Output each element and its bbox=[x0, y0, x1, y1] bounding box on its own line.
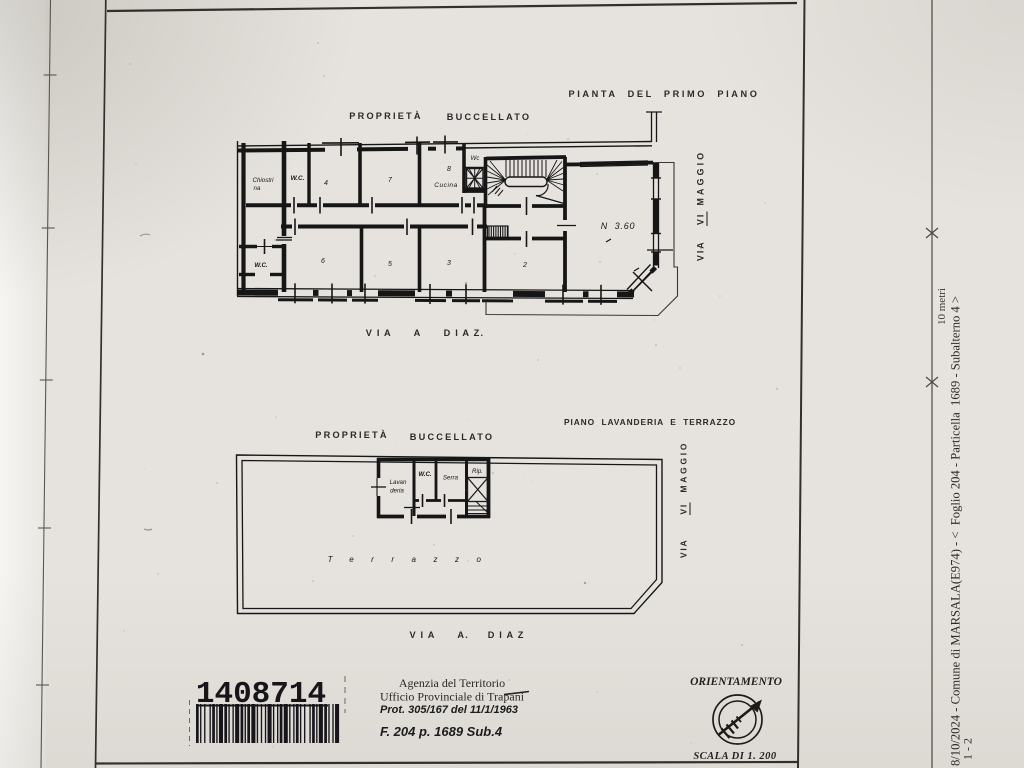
svg-text:W.C.: W.C. bbox=[418, 471, 432, 478]
svg-text:N 3.60: N 3.60 bbox=[601, 221, 636, 231]
svg-text:ORIENTAMENTO: ORIENTAMENTO bbox=[690, 676, 782, 688]
svg-text:3: 3 bbox=[447, 260, 451, 267]
svg-text:PROPRIETÀ: PROPRIETÀ bbox=[315, 429, 388, 440]
svg-text:Ufficio Provinciale di Trapani: Ufficio Provinciale di Trapani bbox=[380, 690, 525, 704]
svg-text:W.C.: W.C. bbox=[291, 175, 305, 182]
svg-text:2: 2 bbox=[522, 262, 527, 269]
svg-text:na: na bbox=[254, 185, 261, 192]
svg-text:W.C.: W.C. bbox=[254, 262, 268, 269]
svg-text:VIA: VIA bbox=[696, 240, 706, 261]
svg-text:Serra: Serra bbox=[443, 475, 459, 482]
svg-text:BUCCELLATO: BUCCELLATO bbox=[410, 432, 494, 442]
svg-text:Lavan: Lavan bbox=[390, 479, 407, 486]
svg-text:MAGGIO: MAGGIO bbox=[696, 150, 706, 206]
svg-text:1 - 2: 1 - 2 bbox=[961, 738, 975, 760]
svg-text:VI: VI bbox=[679, 503, 689, 515]
svg-text:SCALA DI 1. 200: SCALA DI 1. 200 bbox=[693, 751, 777, 762]
svg-text:4: 4 bbox=[324, 180, 328, 187]
svg-text:PIANTA DEL PRIMO PIANO: PIANTA DEL PRIMO PIANO bbox=[569, 89, 760, 99]
svg-text:PIANO LAVANDERIA E TERRAZZO: PIANO LAVANDERIA E TERRAZZO bbox=[564, 417, 736, 427]
svg-text:Cucina: Cucina bbox=[434, 182, 458, 189]
svg-text:BUCCELLATO: BUCCELLATO bbox=[447, 112, 531, 122]
svg-text:V I A A D I A Z.: V I A A D I A Z. bbox=[366, 328, 484, 338]
svg-text:8/10/2024 - Comune di MARSALA(: 8/10/2024 - Comune di MARSALA(E974) - < … bbox=[949, 296, 963, 766]
svg-text:Agenzia del Territorio: Agenzia del Territorio bbox=[399, 676, 505, 690]
svg-text:MAGGIO: MAGGIO bbox=[679, 441, 689, 493]
svg-text:VIA: VIA bbox=[679, 539, 689, 558]
svg-text:VI: VI bbox=[696, 213, 706, 225]
svg-text:V I A A. D I A Z: V I A A. D I A Z bbox=[409, 630, 524, 640]
svg-text:6: 6 bbox=[321, 258, 325, 265]
svg-text:PROPRIETÀ: PROPRIETÀ bbox=[349, 110, 422, 121]
svg-text:deria: deria bbox=[390, 488, 404, 495]
svg-text:8: 8 bbox=[447, 166, 451, 173]
svg-text:5: 5 bbox=[388, 261, 392, 268]
svg-text:Prot. 305/167 del 11/1/1963: Prot. 305/167 del 11/1/1963 bbox=[380, 704, 518, 716]
svg-text:Rip.: Rip. bbox=[472, 468, 483, 475]
svg-text:Terrazzo: Terrazzo bbox=[328, 555, 499, 564]
svg-text:10 metri: 10 metri bbox=[936, 288, 948, 325]
svg-text:Wc: Wc bbox=[471, 156, 480, 162]
svg-text:Chiostri: Chiostri bbox=[253, 177, 275, 184]
svg-text:F. 204 p. 1689 Sub.4: F. 204 p. 1689 Sub.4 bbox=[380, 724, 503, 739]
